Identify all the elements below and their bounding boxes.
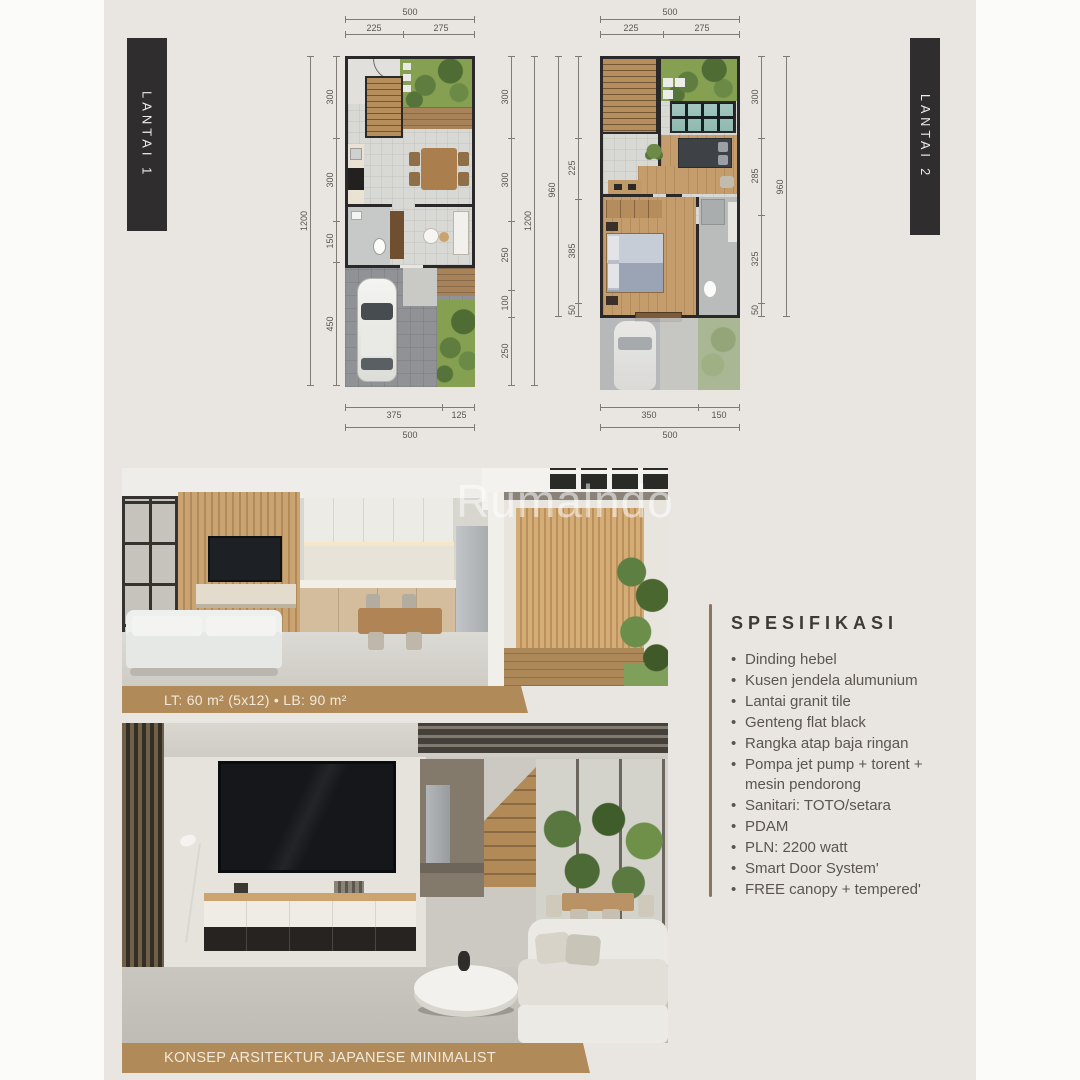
dim-label: 500 bbox=[655, 7, 685, 17]
p2-counter bbox=[420, 863, 484, 873]
photo1-caption: LT: 60 m² (5x12) • LB: 90 m² bbox=[122, 692, 347, 708]
plan1-deck-strip bbox=[437, 268, 475, 296]
plan2-shower bbox=[701, 199, 725, 225]
plan2-step-pad bbox=[675, 78, 685, 87]
dim-line bbox=[600, 407, 740, 408]
dim-label: 100 bbox=[500, 288, 510, 318]
dim-label: 300 bbox=[325, 82, 335, 112]
dim-label: 500 bbox=[395, 7, 425, 17]
plan1-wall-top bbox=[345, 56, 475, 59]
dim-tick bbox=[333, 221, 340, 222]
spec-item: Kusen jendela alumunium bbox=[731, 671, 943, 691]
spec-item: Sanitari: TOTO/setara bbox=[731, 796, 943, 816]
plan2-step-pad bbox=[663, 90, 673, 99]
plan2-nightstand bbox=[606, 222, 618, 231]
dim-line bbox=[761, 56, 762, 317]
credenza-top bbox=[204, 893, 416, 901]
floorplan-1 bbox=[345, 56, 475, 387]
dim-line bbox=[600, 427, 740, 428]
car2-windshield bbox=[618, 337, 652, 350]
dim-tick bbox=[575, 138, 582, 139]
dresser-decor bbox=[614, 184, 622, 190]
table-top bbox=[414, 965, 518, 1011]
sofa-seat bbox=[518, 959, 668, 1009]
p2-ceiling-beams bbox=[418, 723, 668, 753]
dim-line bbox=[345, 407, 475, 408]
dim-label: 300 bbox=[500, 165, 510, 195]
dim-label: 285 bbox=[750, 161, 760, 191]
plan2-nightstand bbox=[606, 296, 618, 305]
credenza-decor bbox=[234, 883, 248, 893]
bed2-pillow bbox=[718, 155, 728, 165]
plan1-wall bbox=[415, 204, 472, 207]
dim-label: 1200 bbox=[299, 206, 309, 236]
dim-label: 500 bbox=[395, 430, 425, 440]
p2-sofa bbox=[518, 919, 668, 1043]
plan2-hall-floor bbox=[638, 166, 682, 194]
dim-tick bbox=[442, 404, 443, 411]
plan1-dining-chair bbox=[409, 172, 420, 186]
plan2-toilet bbox=[704, 281, 716, 297]
spec-heading: SPESIFIKASI bbox=[731, 613, 898, 634]
dim-label: 1200 bbox=[523, 206, 533, 236]
car-rear-window bbox=[361, 358, 393, 370]
plan1-wall-left bbox=[345, 56, 348, 268]
floor2-tag-label: LANTAI 2 bbox=[918, 94, 932, 179]
dim-tick bbox=[663, 31, 664, 38]
plan1-stove bbox=[348, 168, 364, 190]
dim-line bbox=[600, 34, 740, 35]
plan1-car bbox=[357, 278, 397, 382]
p2-chair bbox=[638, 895, 654, 917]
dim-label: 275 bbox=[687, 23, 717, 33]
plan1-wall-right bbox=[472, 56, 475, 268]
dim-label: 50 bbox=[750, 295, 760, 325]
plan2-dresser bbox=[608, 180, 642, 194]
floor1-tag: LANTAI 1 bbox=[127, 38, 167, 231]
photo2-caption-bar: KONSEP ARSITEKTUR JAPANESE MINIMALIST bbox=[122, 1043, 590, 1073]
master-bed-pillows bbox=[608, 236, 619, 290]
p1-fridge bbox=[456, 526, 490, 632]
plan1-stairs bbox=[365, 76, 403, 138]
sofa-cushion bbox=[206, 616, 276, 636]
dim-line bbox=[578, 56, 579, 317]
plan1-sink bbox=[350, 148, 362, 160]
plan1-round-chair bbox=[423, 228, 439, 244]
dim-tick bbox=[333, 138, 340, 139]
bed2-pillow bbox=[718, 142, 728, 152]
spec-divider bbox=[709, 604, 712, 897]
spec-list: Dinding hebel Kusen jendela alumunium La… bbox=[731, 650, 943, 901]
dim-tick bbox=[758, 138, 765, 139]
dim-tick bbox=[508, 221, 515, 222]
dim-label: 225 bbox=[567, 153, 577, 183]
p1-tv bbox=[208, 536, 282, 582]
plan1-dining-chair bbox=[458, 152, 469, 166]
dim-line bbox=[345, 19, 475, 20]
plan2-wall-left bbox=[600, 56, 603, 318]
plan1-wardrobe bbox=[453, 211, 469, 255]
credenza-drawers bbox=[204, 927, 416, 951]
plan2-carport-view bbox=[600, 318, 740, 390]
plan1-dining-chair bbox=[409, 152, 420, 166]
photo-living-room bbox=[122, 723, 668, 1043]
dim-tick bbox=[758, 215, 765, 216]
p1-chair bbox=[368, 632, 384, 650]
spec-item: Rangka atap baja ringan bbox=[731, 734, 943, 754]
dim-label: 150 bbox=[325, 226, 335, 256]
plan1-dining-chair bbox=[458, 172, 469, 186]
dim-label: 375 bbox=[379, 410, 409, 420]
sofa-cushion bbox=[132, 616, 202, 636]
spec-item: Dinding hebel bbox=[731, 650, 943, 670]
dim-label: 125 bbox=[444, 410, 474, 420]
spec-item: PLN: 2200 watt bbox=[731, 838, 943, 858]
p2-fridge bbox=[426, 785, 450, 863]
dim-line bbox=[345, 34, 475, 35]
sofa-seat bbox=[126, 632, 282, 668]
dim-label: 300 bbox=[325, 165, 335, 195]
dim-label: 960 bbox=[547, 175, 557, 205]
spec-item: FREE canopy + tempered' bbox=[731, 880, 943, 900]
dim-line bbox=[600, 19, 740, 20]
plan2-vanity bbox=[728, 202, 737, 242]
plan2-wall-right bbox=[737, 56, 740, 318]
plan2-skylight-grid bbox=[670, 101, 736, 133]
dim-label: 150 bbox=[704, 410, 734, 420]
plan2-wall-top bbox=[600, 56, 740, 59]
dim-tick bbox=[698, 404, 699, 411]
dim-line bbox=[786, 56, 787, 317]
dim-label: 50 bbox=[567, 295, 577, 325]
p1-media-console bbox=[196, 584, 296, 608]
plan2-wall bbox=[658, 59, 661, 134]
watermark: Rumalndo bbox=[400, 474, 730, 528]
plan1-path bbox=[403, 268, 437, 306]
dim-line bbox=[345, 427, 475, 428]
dim-label: 250 bbox=[500, 240, 510, 270]
floorplan-2 bbox=[600, 56, 740, 390]
dim-line bbox=[310, 56, 311, 386]
p1-table bbox=[358, 608, 442, 634]
plan2-chair bbox=[720, 176, 734, 188]
plan1-cabinet bbox=[390, 211, 404, 259]
dim-label: 300 bbox=[500, 82, 510, 112]
p2-credenza bbox=[204, 893, 416, 951]
spec-item: Lantai granit tile bbox=[731, 692, 943, 712]
dim-label: 450 bbox=[325, 309, 335, 339]
plan1-bath-sink bbox=[351, 211, 362, 220]
dim-label: 385 bbox=[567, 236, 577, 266]
flyer-canvas: LANTAI 1 LANTAI 2 bbox=[0, 0, 1080, 1080]
p1-plants bbox=[616, 546, 668, 676]
car-windshield bbox=[361, 303, 393, 320]
sofa-pillow bbox=[565, 934, 601, 967]
sofa-front bbox=[518, 1005, 668, 1043]
plan2-plant bbox=[645, 144, 663, 160]
p1-sofa bbox=[126, 610, 282, 680]
car-roof bbox=[361, 322, 393, 356]
plan2-stairs bbox=[603, 59, 658, 134]
dim-label: 960 bbox=[775, 172, 785, 202]
dim-label: 275 bbox=[426, 23, 456, 33]
dim-label: 300 bbox=[750, 82, 760, 112]
credenza-body bbox=[204, 901, 416, 927]
plan1-toilet bbox=[373, 238, 386, 255]
plan2-path bbox=[660, 318, 698, 390]
dim-line bbox=[558, 56, 559, 317]
plan1-side-table bbox=[439, 232, 449, 242]
floor1-tag-label: LANTAI 1 bbox=[140, 91, 155, 178]
plan1-garden-bottom bbox=[437, 300, 475, 387]
plan2-car-below bbox=[614, 321, 656, 390]
photo1-caption-bar: LT: 60 m² (5x12) • LB: 90 m² bbox=[122, 686, 528, 713]
dim-label: 250 bbox=[500, 336, 510, 366]
p2-chair bbox=[546, 895, 562, 917]
p2-stairs bbox=[484, 767, 536, 887]
p2-tv bbox=[218, 761, 396, 873]
dim-tick bbox=[575, 199, 582, 200]
p1-dining-set bbox=[358, 594, 442, 650]
p2-coffee-table bbox=[414, 947, 518, 1019]
p1-countertop bbox=[300, 580, 458, 588]
spec-item: Smart Door System' bbox=[731, 859, 943, 879]
dim-label: 350 bbox=[634, 410, 664, 420]
dim-tick bbox=[508, 138, 515, 139]
spec-item: Genteng flat black bbox=[731, 713, 943, 733]
p1-backsplash bbox=[304, 546, 454, 582]
p1-chair bbox=[406, 632, 422, 650]
dim-label: 325 bbox=[750, 244, 760, 274]
credenza-books bbox=[334, 881, 364, 893]
dim-label: 225 bbox=[616, 23, 646, 33]
photo2-caption: KONSEP ARSITEKTUR JAPANESE MINIMALIST bbox=[122, 1050, 496, 1066]
plan1-step-pads bbox=[403, 63, 411, 95]
table-vase bbox=[458, 951, 470, 971]
tv-reflection bbox=[221, 764, 393, 870]
dim-tick bbox=[333, 262, 340, 263]
sofa-base-shadow bbox=[130, 668, 278, 676]
plan2-closet bbox=[606, 200, 662, 218]
dresser-decor bbox=[628, 184, 636, 190]
plan2-master-bed bbox=[606, 233, 664, 293]
dim-label: 225 bbox=[359, 23, 389, 33]
plan1-dining-table bbox=[421, 148, 457, 190]
plan1-deck bbox=[400, 107, 472, 129]
plan2-bed2 bbox=[678, 138, 732, 168]
spec-item: Pompa jet pump + torent + mesin pendoron… bbox=[731, 755, 943, 795]
floor2-tag: LANTAI 2 bbox=[910, 38, 940, 235]
plan2-step-pad bbox=[663, 78, 673, 87]
plan2-garden-below bbox=[698, 318, 740, 390]
dim-line bbox=[534, 56, 535, 386]
dim-tick bbox=[403, 31, 404, 38]
spec-item: PDAM bbox=[731, 817, 943, 837]
dim-label: 500 bbox=[655, 430, 685, 440]
